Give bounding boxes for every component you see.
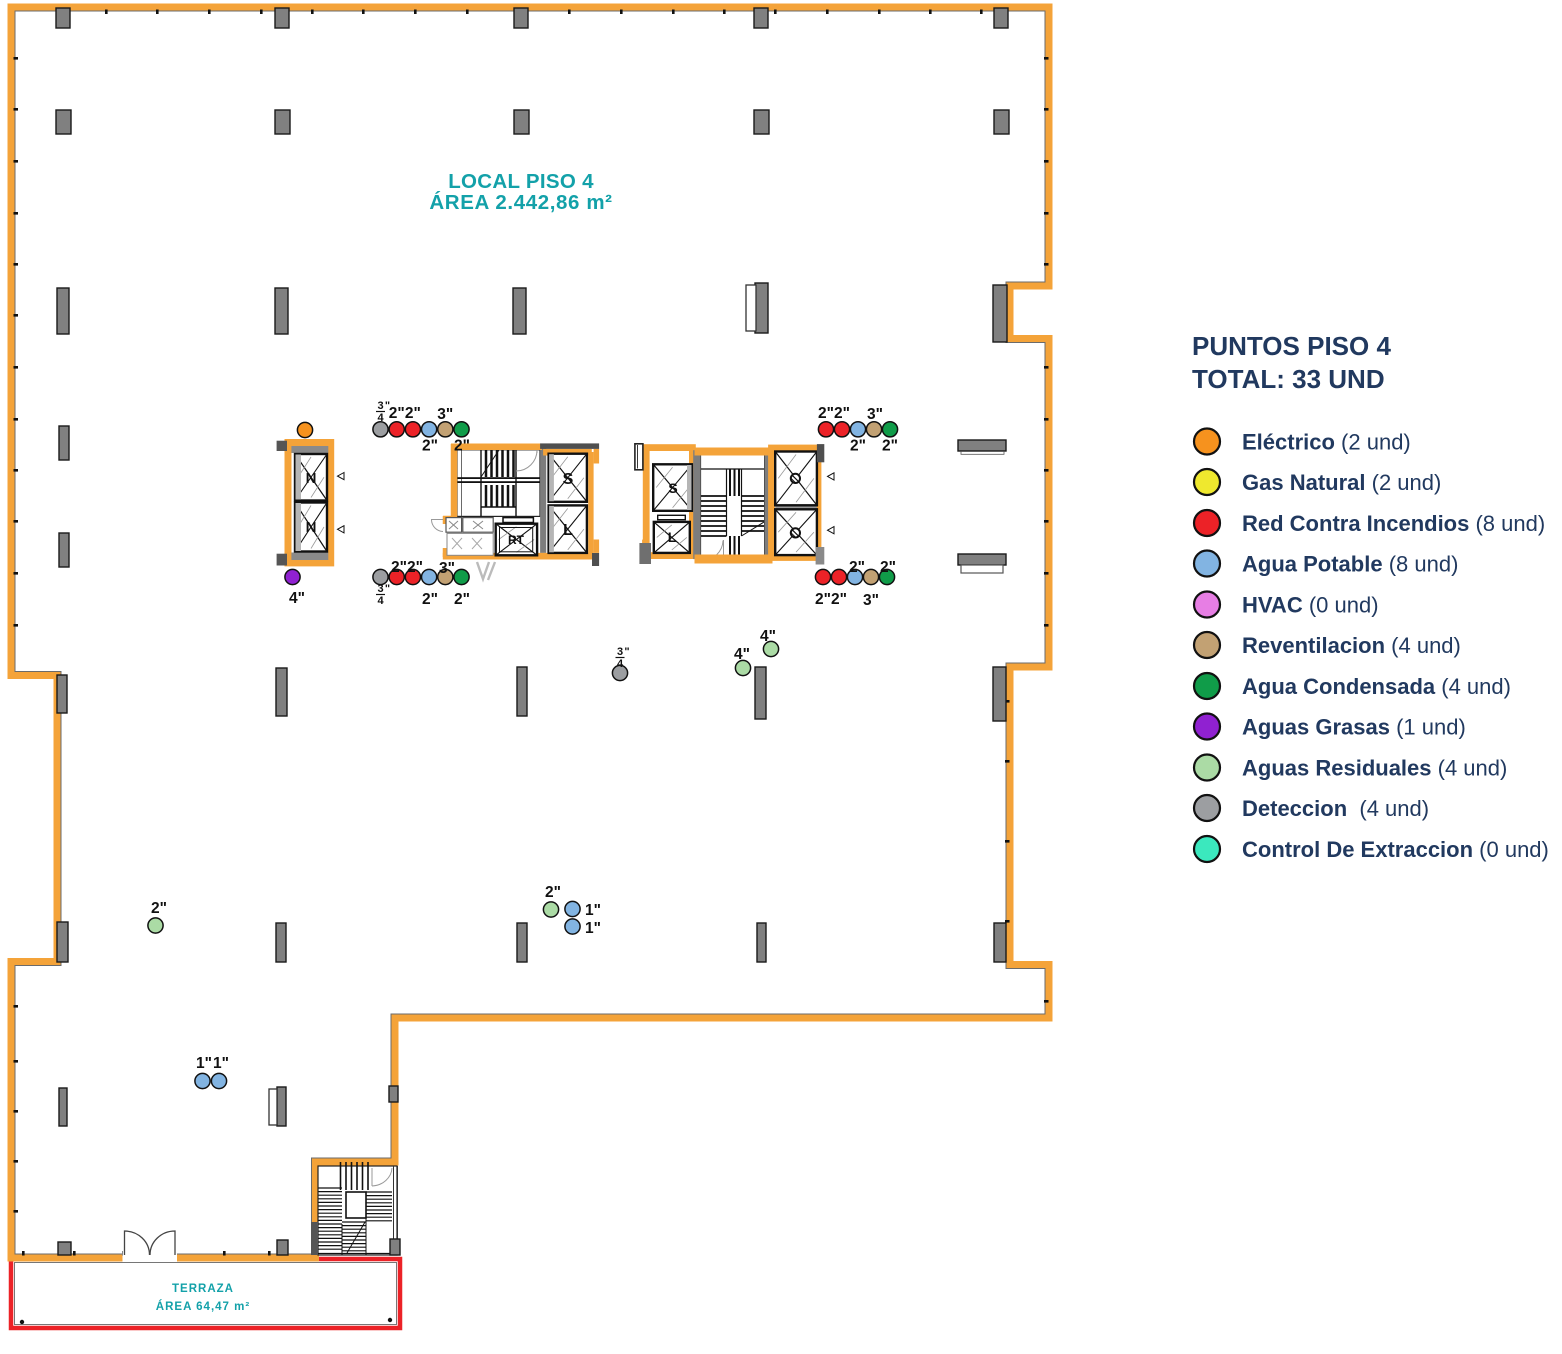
svg-text:4: 4 (377, 595, 384, 607)
svg-text:4": 4" (289, 590, 305, 607)
svg-text:N: N (306, 470, 317, 487)
svg-text:Reventilacion (4 und): Reventilacion (4 und) (1242, 633, 1461, 658)
svg-text:RT: RT (508, 533, 525, 547)
svg-text:Agua Condensada (4 und): Agua Condensada (4 und) (1242, 674, 1511, 699)
svg-text:Eléctrico (2 und): Eléctrico (2 und) (1242, 430, 1411, 455)
svg-text:3": 3" (863, 592, 879, 609)
svg-text:Agua Potable (8 und): Agua Potable (8 und) (1242, 552, 1458, 577)
svg-text:2": 2" (850, 438, 866, 455)
svg-text:2": 2" (454, 591, 470, 608)
svg-text:Red Contra Incendios (8 und): Red Contra Incendios (8 und) (1242, 511, 1545, 536)
svg-text:Deteccion (4 und): Deteccion (4 und) (1242, 796, 1429, 821)
svg-text:3: 3 (377, 583, 383, 595)
svg-text:Gas Natural (2 und): Gas Natural (2 und) (1242, 470, 1441, 495)
svg-text:2": 2" (831, 591, 847, 608)
svg-text:HVAC (0 und): HVAC (0 und) (1242, 593, 1379, 618)
svg-text:1": 1" (196, 1055, 212, 1072)
svg-text:2": 2" (389, 405, 405, 422)
svg-text:2": 2" (849, 559, 865, 576)
svg-text:4": 4" (734, 646, 750, 663)
svg-text:": " (385, 583, 390, 595)
svg-text:4: 4 (377, 412, 384, 424)
svg-text:2": 2" (818, 405, 834, 422)
svg-text:3": 3" (439, 560, 455, 577)
svg-text:2": 2" (882, 438, 898, 455)
svg-text:3": 3" (437, 406, 453, 423)
svg-text:2": 2" (545, 884, 561, 901)
svg-text:2": 2" (454, 438, 470, 455)
svg-text:2": 2" (407, 559, 423, 576)
svg-text:S: S (563, 471, 574, 488)
svg-text:N: N (306, 519, 317, 536)
svg-text:1": 1" (585, 920, 601, 937)
svg-text:L: L (563, 522, 573, 539)
svg-text:Aguas Grasas (1 und): Aguas Grasas (1 und) (1242, 715, 1466, 740)
svg-text:1": 1" (585, 902, 601, 919)
svg-text:Control De Extraccion (0 und): Control De Extraccion (0 und) (1242, 837, 1549, 862)
svg-text:2": 2" (880, 559, 896, 576)
svg-text:TERRAZA: TERRAZA (172, 1283, 234, 1295)
svg-text:1": 1" (213, 1055, 229, 1072)
svg-text:TOTAL: 33 UND: TOTAL: 33 UND (1192, 364, 1385, 394)
svg-text:L: L (668, 529, 677, 545)
svg-text:3": 3" (867, 406, 883, 423)
svg-text:LOCAL PISO 4: LOCAL PISO 4 (448, 170, 594, 193)
svg-text:2": 2" (405, 405, 421, 422)
svg-text:2": 2" (422, 438, 438, 455)
svg-text:3: 3 (617, 646, 623, 658)
svg-text:": " (624, 646, 629, 658)
svg-text:2": 2" (815, 591, 831, 608)
svg-text:4: 4 (617, 658, 624, 670)
svg-text:2": 2" (422, 591, 438, 608)
svg-text:3: 3 (377, 400, 383, 412)
svg-text:ÁREA 64,47 m²: ÁREA 64,47 m² (156, 1300, 250, 1313)
svg-text:2": 2" (391, 559, 407, 576)
svg-text:4": 4" (760, 628, 776, 645)
svg-text:S: S (668, 480, 677, 496)
svg-text:2": 2" (834, 405, 850, 422)
svg-text:ÁREA 2.442,86 m²: ÁREA 2.442,86 m² (429, 191, 612, 214)
svg-text:PUNTOS PISO 4: PUNTOS PISO 4 (1192, 331, 1391, 361)
svg-text:2": 2" (151, 900, 167, 917)
svg-text:Aguas Residuales (4 und): Aguas Residuales (4 und) (1242, 756, 1507, 781)
